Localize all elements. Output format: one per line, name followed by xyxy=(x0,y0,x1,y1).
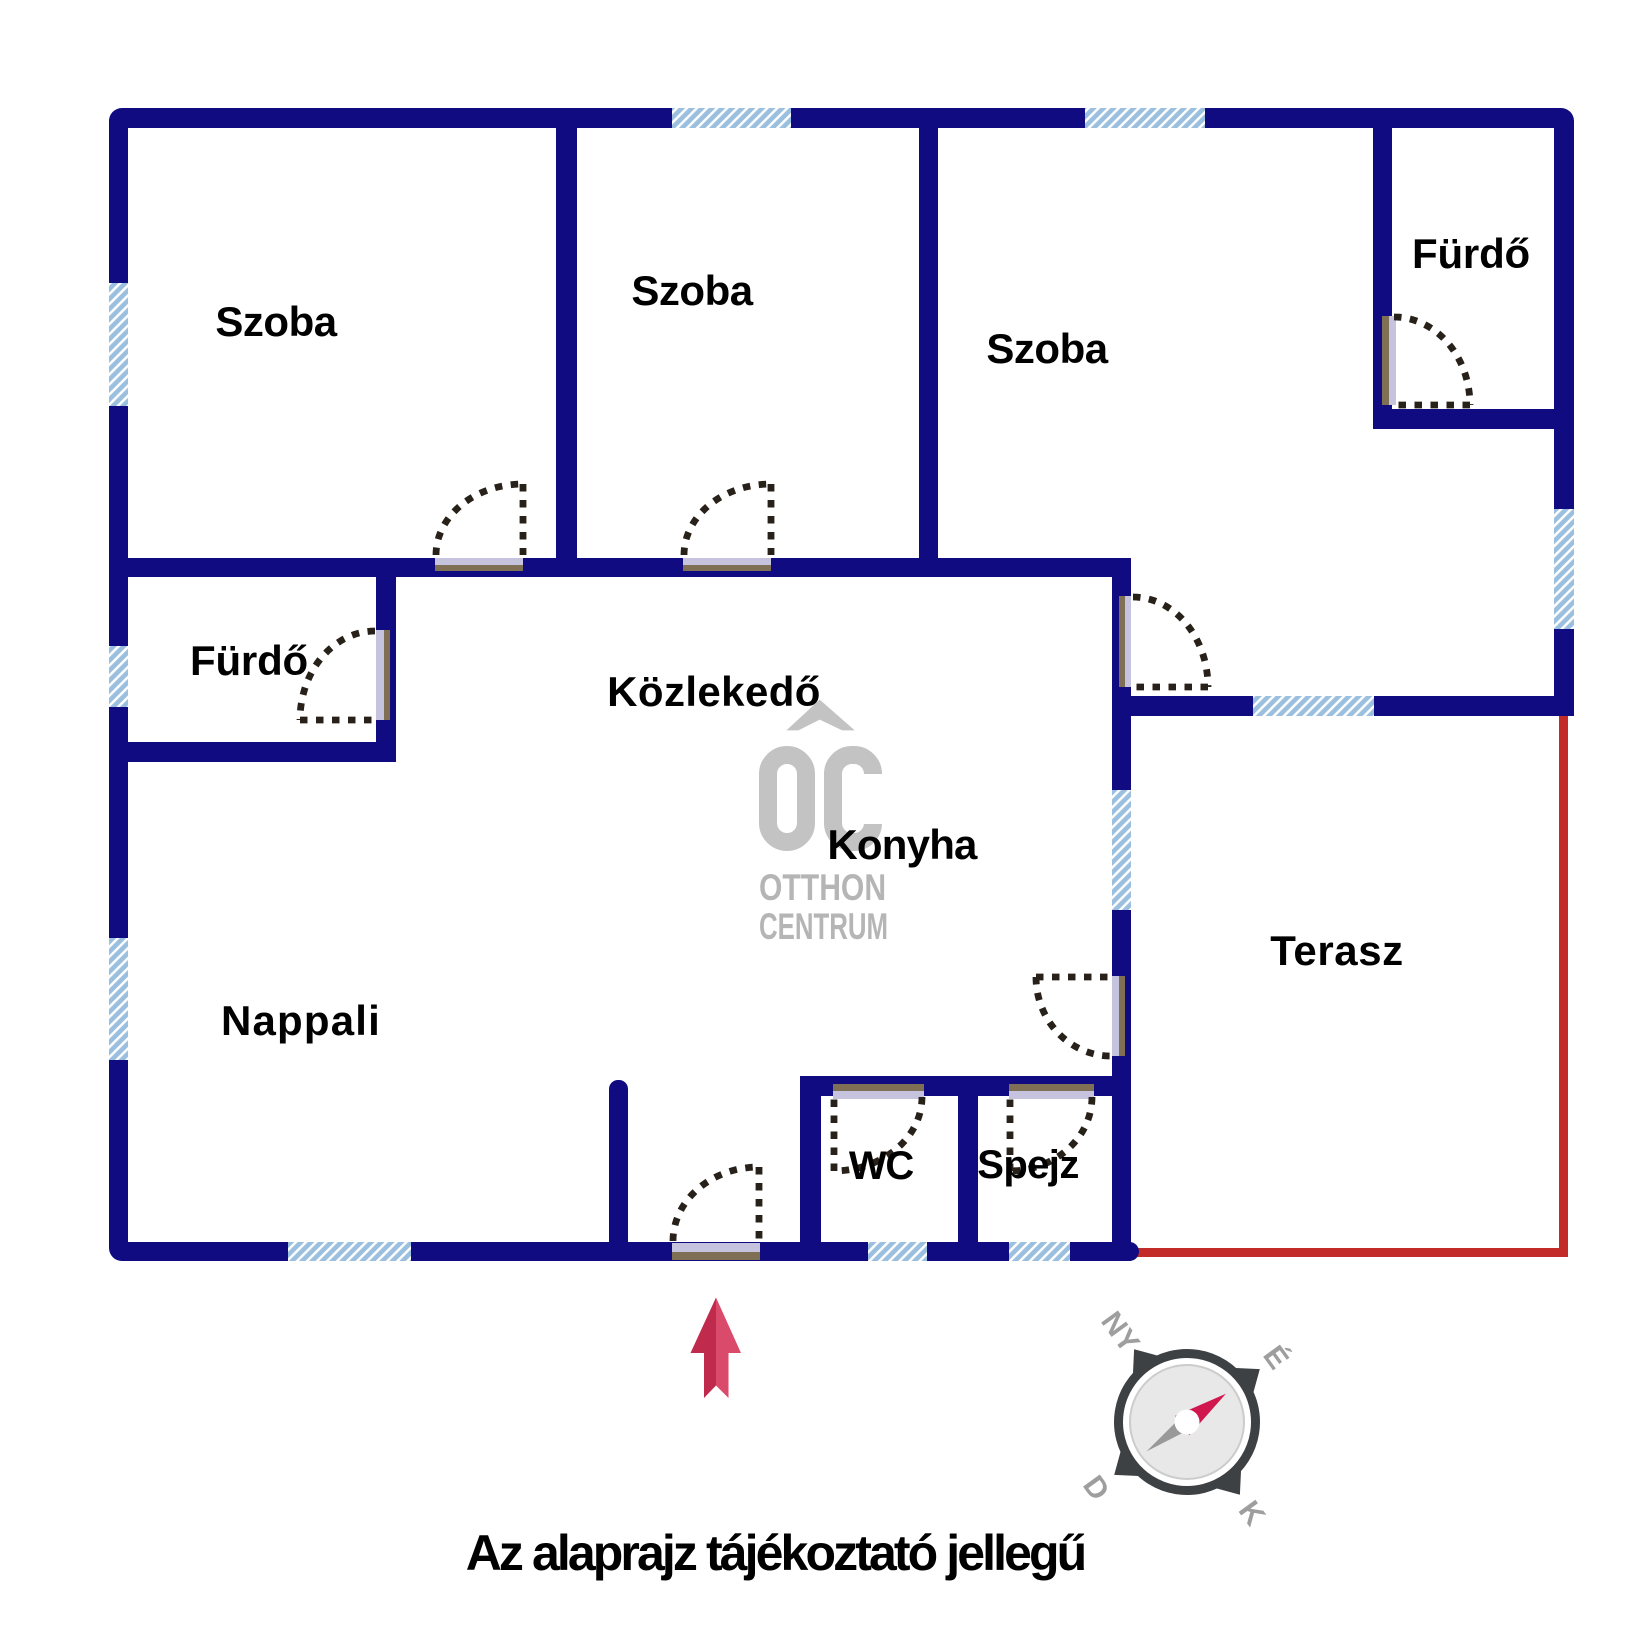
svg-text:CENTRUM: CENTRUM xyxy=(759,905,888,947)
svg-text:Spejz: Spejz xyxy=(977,1143,1078,1187)
svg-text:OTTHON: OTTHON xyxy=(759,867,886,909)
svg-text:Szoba: Szoba xyxy=(986,325,1108,372)
svg-text:Konyha: Konyha xyxy=(827,821,978,868)
svg-text:Az alaprajz tájékoztató jelleg: Az alaprajz tájékoztató jellegű xyxy=(466,1525,1085,1581)
svg-text:Fürdő: Fürdő xyxy=(190,637,308,684)
svg-text:WC: WC xyxy=(849,1144,914,1188)
svg-text:Közlekedő: Közlekedő xyxy=(607,668,821,715)
svg-text:Szoba: Szoba xyxy=(215,298,337,345)
svg-text:Szoba: Szoba xyxy=(631,267,753,314)
svg-text:Nappali: Nappali xyxy=(221,997,381,1044)
svg-text:Fürdő: Fürdő xyxy=(1412,230,1530,277)
svg-text:Terasz: Terasz xyxy=(1270,927,1404,974)
